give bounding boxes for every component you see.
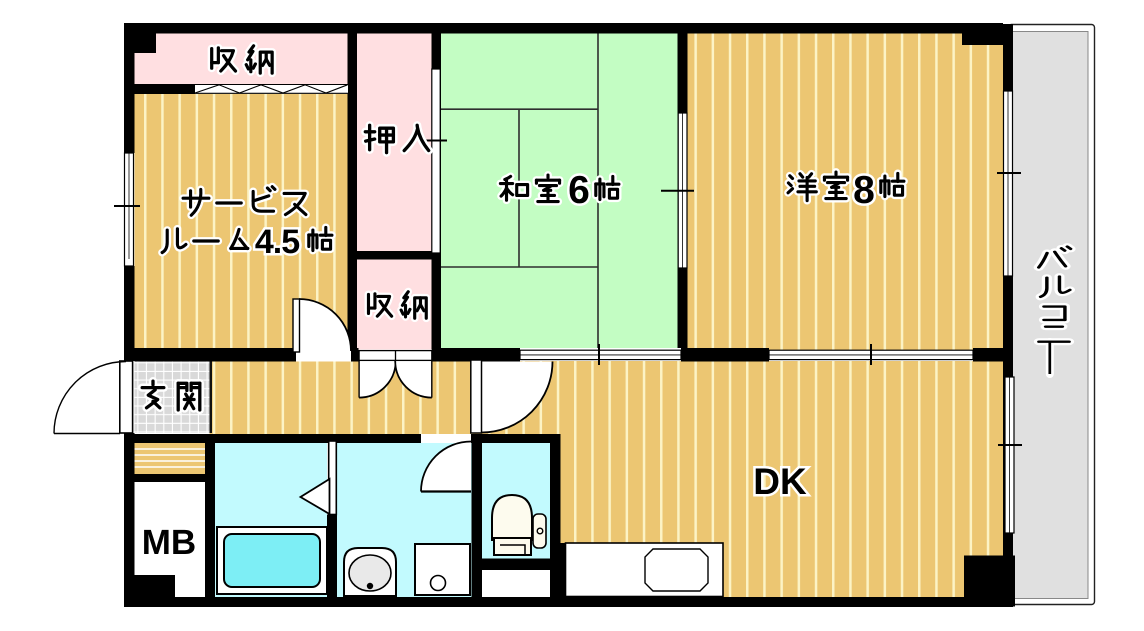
svg-text:MB: MB	[142, 523, 196, 562]
svg-text:8: 8	[853, 169, 875, 212]
svg-text:DK: DK	[753, 461, 807, 502]
svg-text:6: 6	[568, 169, 590, 212]
svg-text:4.5: 4.5	[255, 223, 299, 261]
